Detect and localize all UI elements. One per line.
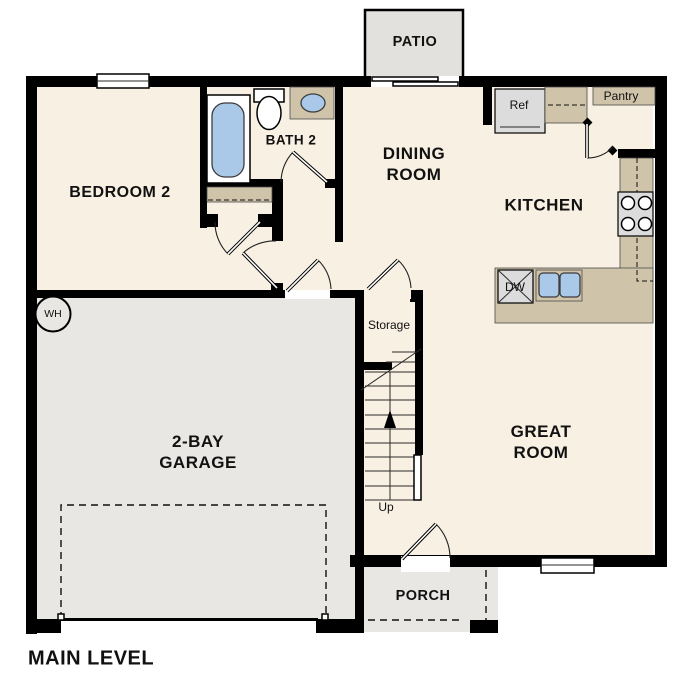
dishwasher-label: DW [505, 280, 525, 294]
wall-pantry-south [618, 149, 655, 158]
plan-title: MAIN LEVEL [28, 648, 154, 671]
burner-4 [639, 218, 652, 231]
pantry-label: Pantry [604, 89, 639, 103]
wall-kitchen-stub [483, 87, 492, 125]
wall-garage-bottom-right [316, 619, 358, 633]
storage-label: Storage [368, 318, 410, 332]
sliding-door-panel-2 [393, 82, 458, 86]
bath2-label: BATH 2 [266, 133, 317, 148]
patio-label: PATIO [393, 34, 438, 50]
wall-right [655, 87, 667, 567]
toilet-bowl [257, 97, 281, 130]
floor-plan: BEDROOM 2 BATH 2 DINING ROOM KITCHEN GRE… [0, 0, 687, 687]
bedroom2-label: BEDROOM 2 [69, 184, 170, 202]
sink-basin-right [560, 273, 580, 297]
floor-plan-drawing [0, 0, 687, 687]
burner-2 [639, 197, 652, 210]
garage-track-right [322, 614, 328, 620]
wall-bedroom-east [200, 87, 207, 228]
wall-hall-dining [335, 87, 343, 242]
wall-storage-stairs [358, 362, 392, 370]
storage-opening [364, 290, 411, 299]
bathtub [212, 103, 244, 177]
bath-sink [301, 94, 325, 112]
kitchen-label: KITCHEN [504, 195, 583, 216]
garage-label: 2-BAY GARAGE [159, 431, 237, 473]
water-heater-label: WH [44, 308, 62, 320]
wall-stairs-right [415, 290, 423, 455]
wall-porch-stub [470, 620, 498, 633]
wall-garage-stairs [355, 290, 364, 633]
wall-garage-top [26, 290, 287, 298]
entry-opening [401, 556, 450, 572]
stair-railing [414, 455, 421, 500]
wall-left [26, 76, 37, 634]
garage-entry-opening [285, 290, 330, 299]
wall-stairs-corner [410, 290, 423, 302]
wall-closet-east [272, 179, 283, 241]
sink-basin-left [539, 273, 559, 297]
garage-door-line [59, 618, 318, 621]
dining-line2: ROOM [383, 164, 446, 185]
burner-3 [622, 218, 635, 231]
garage-line1: 2-BAY [159, 431, 237, 452]
great-line1: GREAT [511, 421, 572, 442]
refrigerator-label: Ref [510, 98, 529, 112]
burner-1 [622, 197, 635, 210]
sliding-door-panel-1 [372, 77, 438, 81]
dining-room-label: DINING ROOM [383, 143, 446, 185]
wall-greatroom-bottom [350, 555, 667, 567]
up-label: Up [378, 500, 393, 514]
great-room-label: GREAT ROOM [511, 421, 572, 463]
garage-track-left [58, 614, 64, 620]
wall-garage-bottom-left [26, 619, 61, 633]
dining-line1: DINING [383, 143, 446, 164]
great-line2: ROOM [511, 442, 572, 463]
garage-line2: GARAGE [159, 452, 237, 473]
porch-label: PORCH [396, 588, 451, 604]
